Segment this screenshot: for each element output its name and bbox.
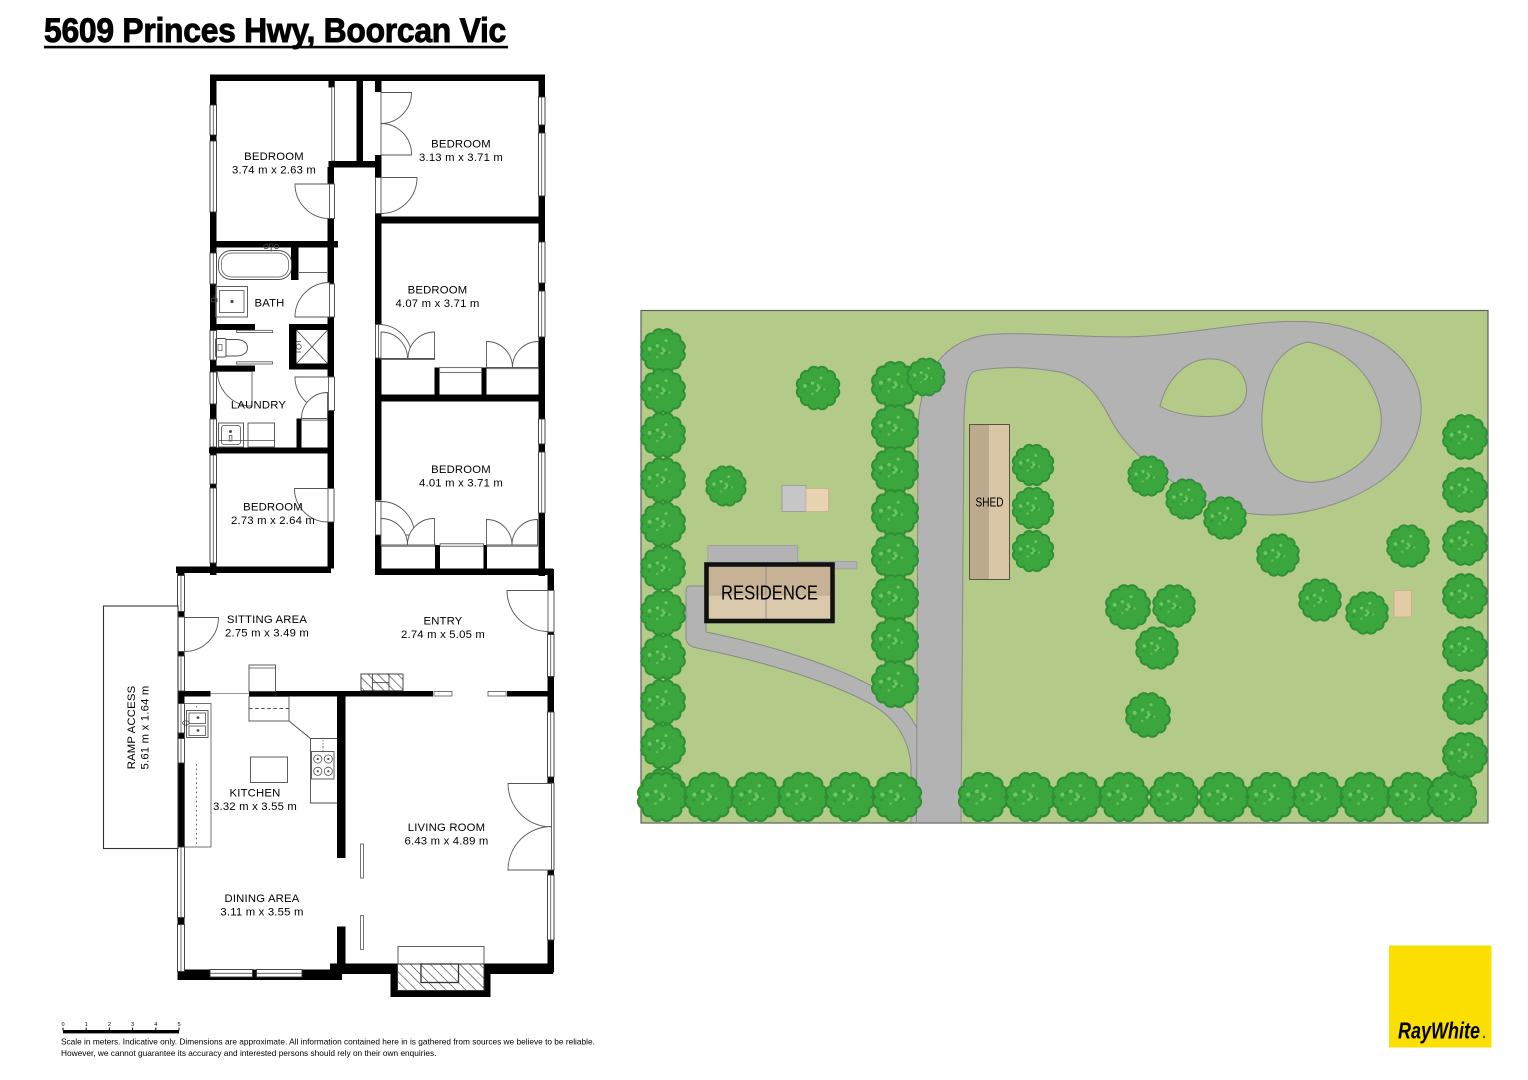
svg-text:DINING AREA: DINING AREA xyxy=(224,893,299,905)
svg-text:RESIDENCE: RESIDENCE xyxy=(721,582,818,605)
svg-text:Scale in meters. Indicative on: Scale in meters. Indicative only. Dimens… xyxy=(61,1037,595,1047)
svg-text:BEDROOM: BEDROOM xyxy=(408,285,468,297)
svg-text:2.73 m x 2.64 m: 2.73 m x 2.64 m xyxy=(231,515,315,527)
svg-text:RayWhite: RayWhite xyxy=(1398,1018,1480,1044)
svg-text:0: 0 xyxy=(61,1022,64,1028)
svg-text:2.75 m x 3.49 m: 2.75 m x 3.49 m xyxy=(225,628,309,640)
svg-text:2: 2 xyxy=(108,1022,111,1028)
svg-text:5: 5 xyxy=(177,1022,180,1028)
svg-text:SHED: SHED xyxy=(976,495,1004,510)
svg-text:6.43 m x 4.89 m: 6.43 m x 4.89 m xyxy=(405,836,489,848)
svg-text:BEDROOM: BEDROOM xyxy=(243,502,303,514)
svg-text:BEDROOM: BEDROOM xyxy=(431,139,491,151)
svg-text:LIVING ROOM: LIVING ROOM xyxy=(408,822,486,834)
svg-text:3: 3 xyxy=(131,1022,134,1028)
svg-text:3.11 m x 3.55 m: 3.11 m x 3.55 m xyxy=(220,907,303,919)
svg-text:BEDROOM: BEDROOM xyxy=(244,151,304,163)
svg-text:ENTRY: ENTRY xyxy=(423,616,462,628)
svg-text:BATH: BATH xyxy=(254,298,284,310)
svg-text:2.74 m x 5.05 m: 2.74 m x 5.05 m xyxy=(401,629,485,641)
svg-text:3.74 m x 2.63 m: 3.74 m x 2.63 m xyxy=(232,165,316,177)
svg-text:KITCHEN: KITCHEN xyxy=(230,788,281,800)
svg-text:LAUNDRY: LAUNDRY xyxy=(231,400,286,412)
svg-text:4.07 m x 3.71 m: 4.07 m x 3.71 m xyxy=(396,298,480,310)
svg-text:1: 1 xyxy=(85,1022,88,1028)
svg-text:SITTING AREA: SITTING AREA xyxy=(227,614,308,626)
svg-text:5.61 m x 1.64 m: 5.61 m x 1.64 m xyxy=(140,686,152,770)
svg-text:RAMP ACCESS: RAMP ACCESS xyxy=(126,685,138,769)
svg-text:4.01 m x 3.71 m: 4.01 m x 3.71 m xyxy=(419,478,503,490)
svg-text:4: 4 xyxy=(154,1022,157,1028)
svg-text:BEDROOM: BEDROOM xyxy=(431,464,491,476)
svg-text:3.13 m x 3.71 m: 3.13 m x 3.71 m xyxy=(419,152,503,164)
svg-text:However, we cannot guarantee i: However, we cannot guarantee its accurac… xyxy=(61,1048,436,1058)
svg-text:5609 Princes Hwy, Boorcan Vic: 5609 Princes Hwy, Boorcan Vic xyxy=(44,12,506,50)
svg-text:3.32 m x 3.55 m: 3.32 m x 3.55 m xyxy=(213,801,297,813)
